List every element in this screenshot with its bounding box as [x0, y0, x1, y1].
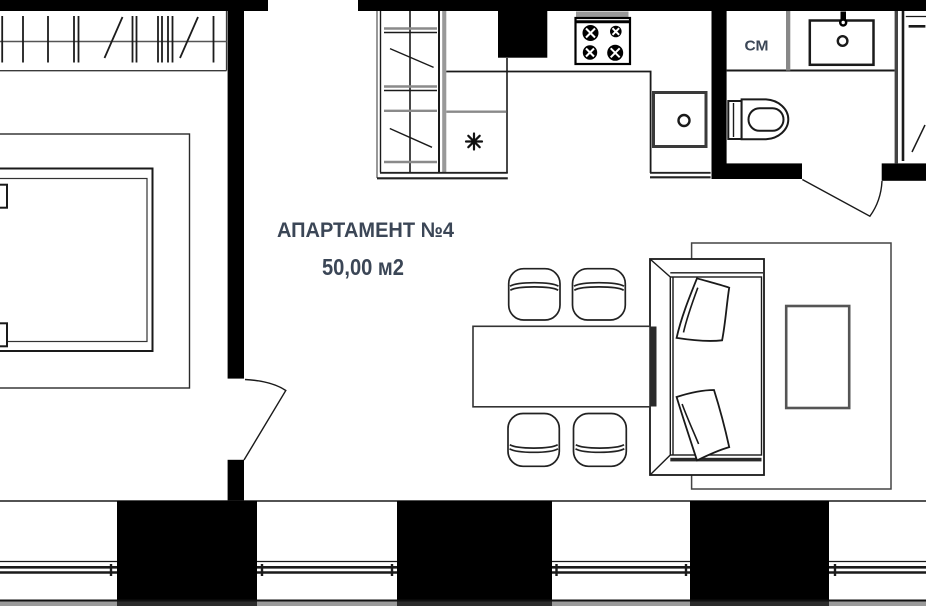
svg-text:СМ: СМ [745, 38, 769, 55]
svg-text:50,00 м2: 50,00 м2 [322, 254, 404, 280]
svg-text:АПАРТАМЕНТ №4: АПАРТАМЕНТ №4 [277, 219, 454, 242]
